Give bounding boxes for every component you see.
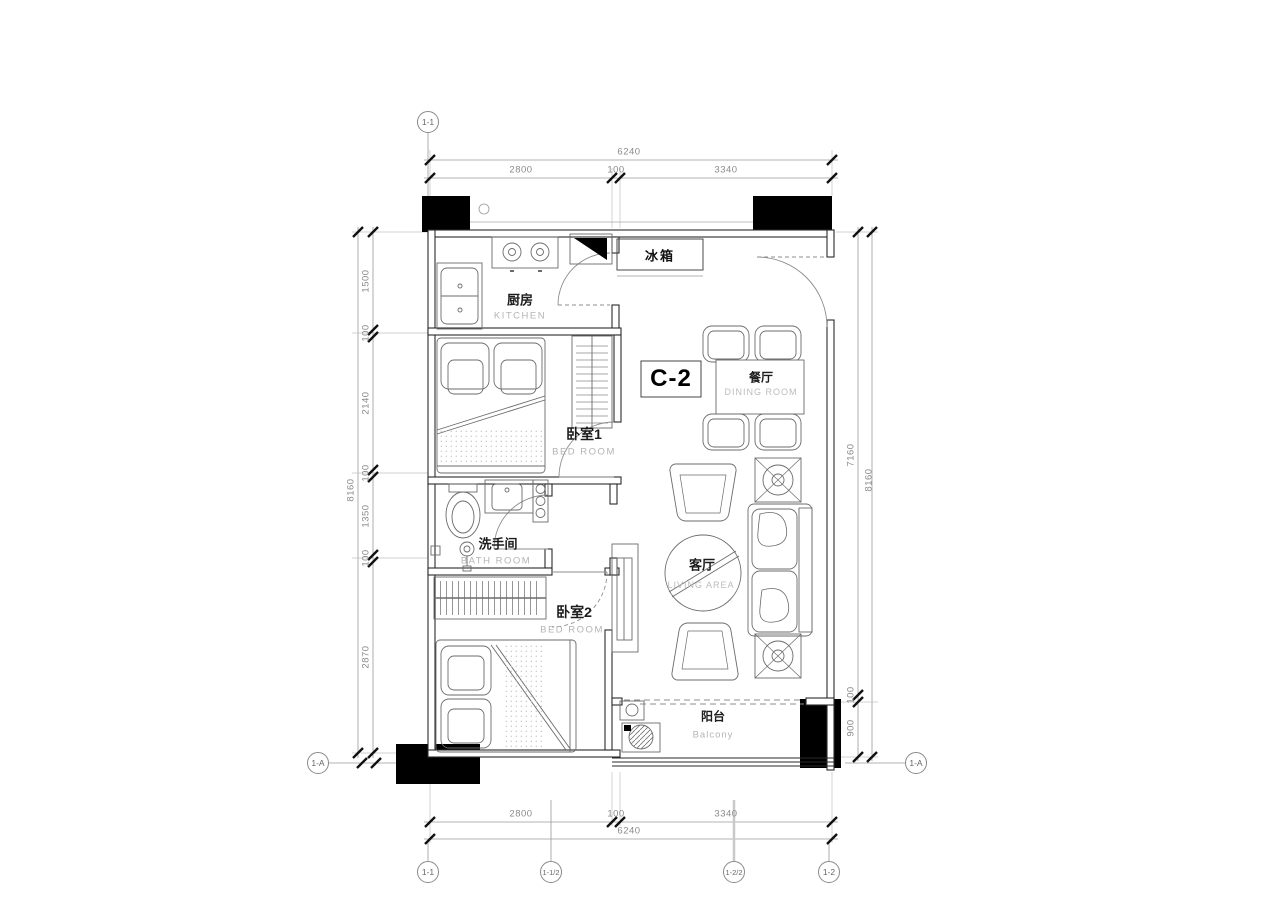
dim-left-seg-7: 2870 xyxy=(361,645,372,668)
dim-left-total: 8160 xyxy=(346,478,357,501)
dim-left-seg-3: 2140 xyxy=(361,391,372,414)
room-label-bathroom-cn: 洗手间 xyxy=(478,534,517,553)
axis-label: 1-A xyxy=(311,758,324,768)
room-label-dining-en: DINING ROOM xyxy=(725,387,798,397)
room-label-bedroom1-en: BED ROOM xyxy=(552,447,616,458)
room-label-kitchen-cn: 厨房 xyxy=(507,290,533,309)
room-label-balcony-cn: 阳台 xyxy=(701,708,725,725)
dim-left-seg-4: 100 xyxy=(361,464,372,481)
dim-top-seg-3: 3340 xyxy=(714,165,737,176)
room-label-kitchen-en: KITCHEN xyxy=(494,311,546,322)
walls xyxy=(428,230,834,770)
floor-plan-drawing xyxy=(0,0,1280,904)
room-label-bedroom2-en: BED ROOM xyxy=(540,625,604,636)
dim-left-seg-2: 100 xyxy=(361,324,372,341)
room-label-living-cn: 客厅 xyxy=(689,555,715,574)
axis-bubble-bottom-4: 1-2 xyxy=(818,861,840,883)
room-label-dining-cn: 餐厅 xyxy=(749,369,773,386)
dim-left-seg-5: 1350 xyxy=(361,504,372,527)
balcony-fixtures xyxy=(620,701,660,752)
dim-top-seg-2: 100 xyxy=(607,165,624,176)
dim-right-seg-3: 900 xyxy=(846,719,857,736)
axis-bubble-top-left: 1-1 xyxy=(417,111,439,133)
unit-label: C-2 xyxy=(650,365,692,393)
dim-top-seg-1: 2800 xyxy=(509,165,532,176)
axis-label: 1-A xyxy=(909,758,922,768)
axis-label: 1-1 xyxy=(422,117,434,127)
dim-right-total: 8160 xyxy=(864,468,875,491)
axis-bubble-right: 1-A xyxy=(905,752,927,774)
axis-label: 1-2 xyxy=(823,867,835,877)
bedroom2-furniture xyxy=(434,577,576,752)
dim-left-seg-6: 100 xyxy=(361,549,372,566)
room-label-living-en: LIVING AREA xyxy=(667,580,734,590)
axis-label: 1-2/2 xyxy=(725,868,742,877)
dim-bottom-total: 6240 xyxy=(617,826,640,837)
dim-right-seg-2: 100 xyxy=(846,686,857,703)
axis-bubble-bottom-3: 1-2/2 xyxy=(723,861,745,883)
room-label-bathroom-en: BATH ROOM xyxy=(461,556,531,567)
dim-right-seg-1: 7160 xyxy=(846,443,857,466)
corridor-line xyxy=(470,204,753,222)
room-label-balcony-en: Balcony xyxy=(693,730,734,741)
room-label-bedroom1-cn: 卧室1 xyxy=(566,424,602,444)
dim-top-total: 6240 xyxy=(617,147,640,158)
dim-bottom-seg-1: 2800 xyxy=(509,809,532,820)
dim-bottom-seg-3: 3340 xyxy=(714,809,737,820)
axis-bubble-bottom-2: 1-1/2 xyxy=(540,861,562,883)
room-label-bedroom2-cn: 卧室2 xyxy=(556,602,592,622)
axis-bubble-bottom-1: 1-1 xyxy=(417,861,439,883)
columns xyxy=(396,196,841,784)
dim-left-seg-1: 1500 xyxy=(361,269,372,292)
axis-bubble-left: 1-A xyxy=(307,752,329,774)
dim-bottom-seg-2: 100 xyxy=(607,809,624,820)
axis-label: 1-1/2 xyxy=(542,868,559,877)
axis-label: 1-1 xyxy=(422,867,434,877)
room-label-fridge: 冰箱 xyxy=(645,246,675,265)
floor-plan-canvas: 1-1 1-A 1-A 1-1 1-1/2 1-2/2 1-2 6240 280… xyxy=(0,0,1280,904)
